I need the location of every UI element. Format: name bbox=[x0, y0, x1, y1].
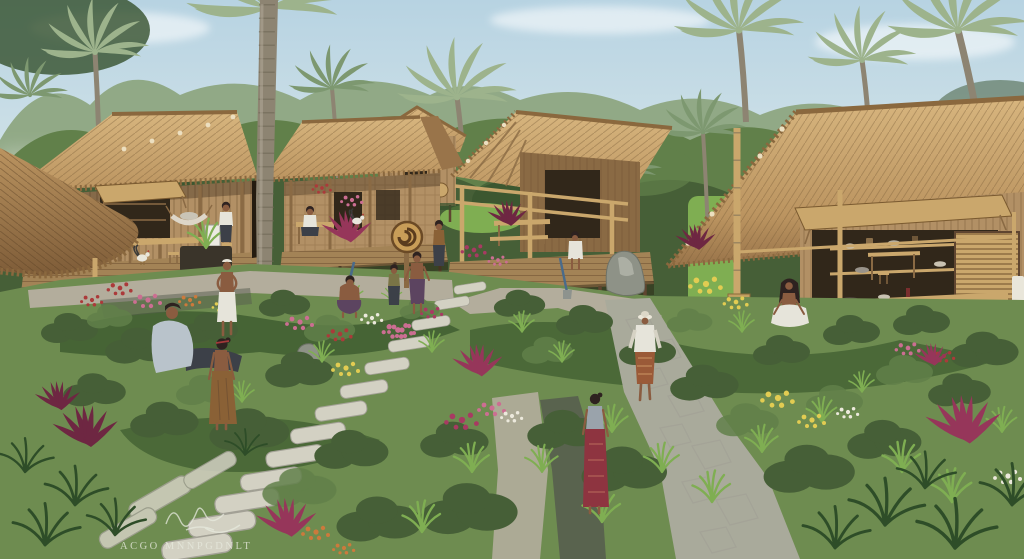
village-illustration: Architectural illustration of a tropical… bbox=[0, 0, 1024, 559]
stool bbox=[168, 252, 179, 255]
scene-canvas: Architectural illustration of a tropical… bbox=[0, 0, 1024, 559]
cloud bbox=[490, 6, 710, 34]
hanging-cloth bbox=[1012, 276, 1024, 302]
stool bbox=[878, 272, 889, 275]
hut-opening bbox=[545, 170, 600, 238]
watermark-text: ACGO MNNPGDNLT bbox=[120, 541, 252, 552]
stool bbox=[222, 243, 232, 246]
hut-window bbox=[376, 190, 400, 220]
